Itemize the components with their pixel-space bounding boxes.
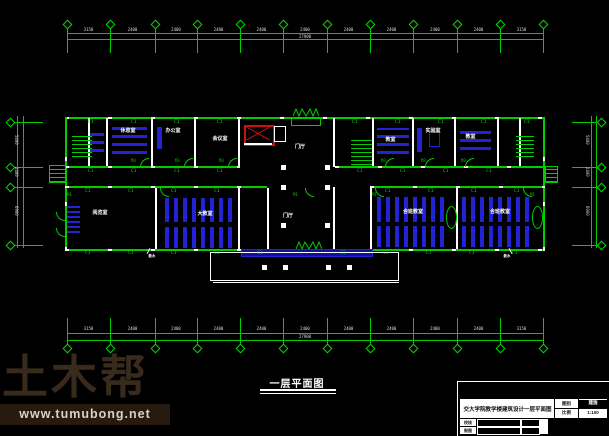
axis-bubble bbox=[193, 344, 203, 354]
axis-bubble bbox=[597, 183, 607, 193]
title-underline bbox=[260, 389, 336, 391]
window-label: C1 bbox=[171, 189, 176, 194]
column-marker bbox=[283, 265, 288, 270]
seat-rows bbox=[165, 198, 237, 222]
axis-bubble bbox=[539, 20, 549, 30]
window-label: C1 bbox=[486, 169, 491, 174]
axis-bubble bbox=[496, 20, 506, 30]
axis-bubble bbox=[453, 344, 463, 354]
window-label: C1 bbox=[128, 189, 133, 194]
column-marker bbox=[347, 265, 352, 270]
partition-wall bbox=[372, 118, 374, 166]
hall-label: 门厅 bbox=[274, 213, 302, 219]
door-label: M1 bbox=[67, 192, 72, 197]
window-label: C1 bbox=[428, 189, 433, 194]
door-label: M3 bbox=[175, 158, 180, 163]
window-label: C1 bbox=[214, 189, 219, 194]
sheet-type-value: 建施 bbox=[579, 400, 607, 408]
door-swing bbox=[425, 158, 434, 167]
partition-wall bbox=[370, 188, 372, 249]
axis-bubble bbox=[453, 20, 463, 30]
dim-text: 3150 bbox=[79, 326, 99, 331]
axis-bubble bbox=[279, 20, 289, 30]
dim-text: 2400 bbox=[123, 27, 143, 32]
title-block-cell bbox=[521, 427, 540, 435]
axis-bubble bbox=[597, 163, 607, 173]
dim-total: 27900 bbox=[285, 334, 325, 339]
window-label: C1 bbox=[128, 251, 133, 256]
dim-text: 2400 bbox=[295, 326, 315, 331]
room-label: 阅览室 bbox=[85, 210, 115, 216]
window-label: C1 bbox=[443, 169, 448, 174]
window-label: C1 bbox=[481, 120, 486, 125]
title-block: 交大学院教学楼建筑设计一层平面图 图别 比例 建施 1:100 bbox=[460, 399, 607, 418]
room-label: 合班教室 bbox=[398, 209, 428, 215]
note-label: 散水 bbox=[142, 253, 162, 259]
partition-wall bbox=[412, 118, 414, 166]
partition-wall bbox=[194, 118, 196, 166]
watermark-brand: 土木帮 bbox=[2, 352, 172, 402]
dim-text: 2400 bbox=[209, 326, 229, 331]
dim-text: 2400 bbox=[209, 27, 229, 32]
door-label: M3 bbox=[219, 158, 224, 163]
window-label: C1 bbox=[257, 251, 262, 256]
window-label: C1 bbox=[88, 120, 93, 125]
axis-bubble bbox=[323, 20, 333, 30]
axis-bubble bbox=[539, 344, 549, 354]
dim-text: 2400 bbox=[425, 27, 445, 32]
seat-rows bbox=[462, 226, 534, 247]
room-label: 休息室 bbox=[113, 128, 143, 134]
scale-label: 比例 bbox=[555, 410, 578, 416]
dim-text: 3150 bbox=[512, 326, 532, 331]
dim-line bbox=[591, 116, 592, 248]
column-marker bbox=[281, 185, 286, 190]
dim-text: 2400 bbox=[585, 167, 590, 187]
room-label: 教室 bbox=[378, 137, 403, 143]
axis-bubble bbox=[236, 344, 246, 354]
sheet-type-label: 图别 bbox=[555, 401, 578, 407]
window-label: C1 bbox=[438, 120, 443, 125]
hall-wall bbox=[238, 187, 240, 249]
dim-text: 2400 bbox=[295, 27, 315, 32]
duct-shaft bbox=[274, 126, 286, 142]
hall-wall bbox=[238, 118, 240, 167]
door-swing bbox=[228, 158, 237, 167]
door-swing bbox=[184, 158, 193, 167]
column-marker bbox=[326, 265, 331, 270]
axis-bubble bbox=[496, 344, 506, 354]
window-label: C1 bbox=[352, 120, 357, 125]
dim-text: 5400 bbox=[585, 135, 590, 155]
window-label: C1 bbox=[469, 251, 474, 256]
hall-wall bbox=[333, 187, 335, 249]
axis-bubble bbox=[193, 20, 203, 30]
dim-text: 3150 bbox=[79, 27, 99, 32]
room-label: 实验室 bbox=[418, 128, 448, 134]
hall-label: 门厅 bbox=[286, 144, 314, 150]
axis-bubble bbox=[106, 20, 116, 30]
column-marker bbox=[262, 265, 267, 270]
axis-bubble bbox=[409, 344, 419, 354]
drawing-title: 一层平面图 bbox=[252, 375, 342, 390]
canopy-outline bbox=[210, 252, 399, 281]
dim-text: 5400 bbox=[14, 135, 19, 155]
window-label: C1 bbox=[217, 120, 222, 125]
door-label: M3 bbox=[131, 158, 136, 163]
seat-rows bbox=[165, 227, 237, 248]
window-label: C1 bbox=[174, 169, 179, 174]
dim-text: 3150 bbox=[512, 27, 532, 32]
window-label: C1 bbox=[385, 189, 390, 194]
window-label: C1 bbox=[214, 251, 219, 256]
room-label: 办公室 bbox=[158, 128, 188, 134]
door-swing bbox=[160, 188, 169, 197]
seat-rows bbox=[377, 226, 447, 247]
window-label: C1 bbox=[340, 251, 345, 256]
dim-text: 2400 bbox=[425, 326, 445, 331]
dim-text: 2400 bbox=[252, 27, 272, 32]
column-marker bbox=[325, 223, 330, 228]
axis-bubble bbox=[597, 241, 607, 251]
window-label: C1 bbox=[85, 251, 90, 256]
dim-text: 2400 bbox=[339, 326, 359, 331]
canopy-outline bbox=[213, 282, 399, 283]
room-label: 教室 bbox=[458, 134, 483, 140]
axis-bubble bbox=[6, 118, 16, 128]
partition-wall bbox=[497, 118, 499, 166]
cad-sheet: 27900 27900 bbox=[0, 0, 609, 436]
stairs bbox=[351, 140, 372, 165]
window-label: C1 bbox=[524, 120, 529, 125]
dim-text: 2400 bbox=[469, 326, 489, 331]
axis-bubble bbox=[366, 344, 376, 354]
draft-label: 制图 bbox=[460, 428, 476, 434]
room-label: 会议室 bbox=[205, 136, 235, 142]
exterior-wall bbox=[543, 117, 545, 251]
dim-text: 2400 bbox=[469, 27, 489, 32]
door-swing bbox=[56, 212, 65, 221]
corridor-wall bbox=[65, 166, 240, 168]
window-label: C1 bbox=[85, 189, 90, 194]
axis-bubble bbox=[63, 20, 73, 30]
dim-text: 2400 bbox=[252, 326, 272, 331]
window-label: C1 bbox=[131, 169, 136, 174]
stairs bbox=[72, 135, 92, 157]
door-swing bbox=[385, 158, 394, 167]
window-label: C1 bbox=[174, 120, 179, 125]
title-block-cell bbox=[521, 419, 540, 427]
dim-line bbox=[67, 340, 544, 341]
title-block-project: 交大学院教学楼建筑设计一层平面图 bbox=[461, 405, 554, 413]
side-exit-steps bbox=[545, 166, 558, 183]
watermark-url: www.tumubong.net bbox=[0, 407, 170, 421]
dim-text: 2400 bbox=[123, 326, 143, 331]
dim-line bbox=[23, 116, 24, 248]
dim-line bbox=[596, 116, 597, 248]
title-block-rows: 校核 制图 bbox=[460, 419, 476, 434]
dim-text: 2400 bbox=[382, 326, 402, 331]
door-swing bbox=[140, 158, 149, 167]
axis-bubble bbox=[151, 20, 161, 30]
bookshelf bbox=[67, 203, 80, 233]
room-label: 大教室 bbox=[190, 211, 220, 217]
door-swing bbox=[465, 158, 474, 167]
sheet-frame bbox=[457, 381, 458, 436]
title-block-cell bbox=[540, 419, 548, 434]
title-block-cell bbox=[477, 419, 521, 427]
window-label: C1 bbox=[217, 169, 222, 174]
partition-wall bbox=[155, 188, 157, 249]
column-marker bbox=[325, 185, 330, 190]
window-label: C1 bbox=[88, 169, 93, 174]
dim-text: 2400 bbox=[382, 27, 402, 32]
watermark-bar: www.tumubong.net bbox=[0, 404, 170, 425]
lectern bbox=[532, 206, 543, 229]
partition-wall bbox=[151, 118, 153, 166]
title-block-cell bbox=[477, 427, 521, 435]
canopy-zigzag-icon bbox=[293, 108, 319, 117]
window-label: C1 bbox=[383, 251, 388, 256]
partition-wall bbox=[454, 118, 456, 166]
dim-text: 2400 bbox=[14, 167, 19, 187]
title-block-grid bbox=[554, 408, 607, 409]
window-label: C1 bbox=[171, 251, 176, 256]
partition-wall bbox=[106, 118, 108, 166]
sheet-frame bbox=[457, 381, 609, 382]
title-underline bbox=[260, 393, 336, 394]
door-swing bbox=[56, 228, 65, 237]
side-exit-steps bbox=[49, 165, 66, 183]
column-marker bbox=[281, 223, 286, 228]
room-label: 合班教室 bbox=[485, 209, 515, 215]
stairs bbox=[516, 136, 534, 157]
window-label: C1 bbox=[357, 169, 362, 174]
window-label: C1 bbox=[131, 120, 136, 125]
axis-bubble bbox=[323, 344, 333, 354]
window-label: C1 bbox=[512, 251, 517, 256]
door-swing bbox=[305, 188, 314, 197]
axis-bubble bbox=[279, 344, 289, 354]
window-label: C1 bbox=[400, 169, 405, 174]
dim-text: 6900 bbox=[14, 206, 19, 226]
axis-bubble bbox=[409, 20, 419, 30]
lectern bbox=[446, 206, 457, 229]
corridor-wall bbox=[335, 166, 545, 168]
axis-bubble bbox=[6, 241, 16, 251]
entrance-porch bbox=[291, 117, 321, 126]
dim-text: 2400 bbox=[166, 326, 186, 331]
door-label: M1 bbox=[293, 192, 298, 197]
column-marker bbox=[325, 165, 330, 170]
dim-text: 2400 bbox=[166, 27, 186, 32]
door-swing bbox=[523, 188, 532, 197]
axis-bubble bbox=[597, 118, 607, 128]
window-label: C1 bbox=[395, 120, 400, 125]
window-label: C1 bbox=[471, 189, 476, 194]
title-block-grid bbox=[460, 426, 476, 427]
dim-text: 6900 bbox=[585, 206, 590, 226]
hall-wall bbox=[333, 118, 335, 167]
column-marker bbox=[281, 165, 286, 170]
axis-bubble bbox=[236, 20, 246, 30]
axis-bubble bbox=[366, 20, 376, 30]
window-label: C1 bbox=[514, 189, 519, 194]
window-label: C1 bbox=[426, 251, 431, 256]
scale-value: 1:100 bbox=[579, 410, 607, 415]
partition-wall bbox=[267, 188, 269, 249]
partition-wall bbox=[244, 143, 272, 145]
dim-text: 2400 bbox=[339, 27, 359, 32]
desks bbox=[90, 128, 104, 152]
dim-line bbox=[67, 39, 544, 40]
dim-total: 27900 bbox=[285, 34, 325, 39]
